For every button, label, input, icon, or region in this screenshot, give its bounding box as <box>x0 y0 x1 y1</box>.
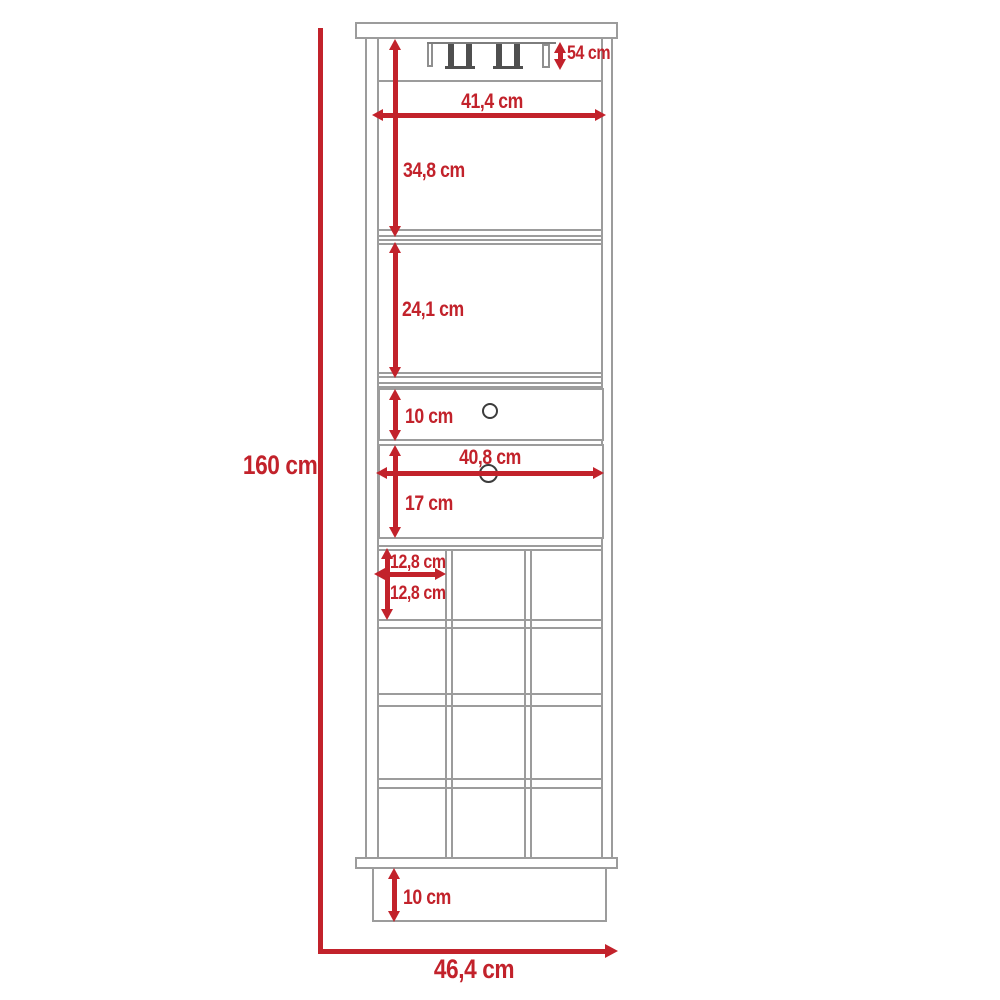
dim-label-inner-width: 41,4 cm <box>450 91 534 112</box>
cabinet-left-wall-outer <box>365 38 367 858</box>
stemware-rack-slat <box>448 44 454 68</box>
stemware-rack-slat-left <box>427 44 433 67</box>
wine-grid-top-edge <box>379 545 601 551</box>
dim-label-total-width: 46,4 cm <box>424 956 525 983</box>
dim-label-base-height: 10 cm <box>403 887 451 908</box>
total-height-dim-line <box>318 28 323 954</box>
stemware-rack-slat <box>496 44 502 68</box>
glass-rack-dim-arrow <box>554 42 566 70</box>
dim-label-wine-cell-height: 12,8 cm <box>390 584 446 603</box>
wine-grid-shelf-1 <box>379 619 601 629</box>
wine-grid-shelf-3 <box>379 778 601 789</box>
dim-label-bottom-drawer-width: 40,8 cm <box>448 447 532 468</box>
upper-section-dim-arrow <box>389 39 401 237</box>
cabinet-top-panel <box>355 22 618 39</box>
shelf-2 <box>379 372 601 378</box>
middle-section-dim-arrow <box>389 242 401 378</box>
total-width-arrowhead <box>605 944 618 958</box>
dim-label-top-drawer: 10 cm <box>405 406 453 427</box>
shelf-1-front-edge <box>379 239 601 245</box>
stemware-rack-slat <box>514 44 520 68</box>
dimension-diagram: 160 cm 46,4 cm 54 cm 41,4 cm 34,8 cm 24,… <box>0 0 1000 1000</box>
stemware-rack-slat-right <box>542 44 550 68</box>
dim-label-upper-section: 34,8 cm <box>403 160 465 181</box>
dim-label-glass-rack: 54 cm <box>567 44 610 63</box>
bottom-drawer-height-dim-arrow <box>389 445 401 538</box>
stemware-rack-slat <box>466 44 472 68</box>
upper-rail <box>379 80 601 82</box>
dim-label-total-height: 160 cm <box>243 452 305 479</box>
cabinet-right-wall-outer <box>611 38 613 858</box>
stemware-rack-rail <box>427 42 556 44</box>
base-height-dim-arrow <box>388 868 400 922</box>
top-drawer-dim-arrow <box>389 389 401 441</box>
stemware-rack-channel-bottom <box>445 66 475 69</box>
dim-label-bottom-drawer-height: 17 cm <box>405 493 453 514</box>
dim-label-middle-section: 24,1 cm <box>402 299 464 320</box>
stemware-rack-channel-bottom <box>493 66 523 69</box>
shelf-1 <box>379 229 601 237</box>
drawer-top-knob <box>482 403 498 419</box>
dim-label-wine-cell-width: 12,8 cm <box>390 553 446 572</box>
wine-grid-shelf-2 <box>379 693 601 707</box>
